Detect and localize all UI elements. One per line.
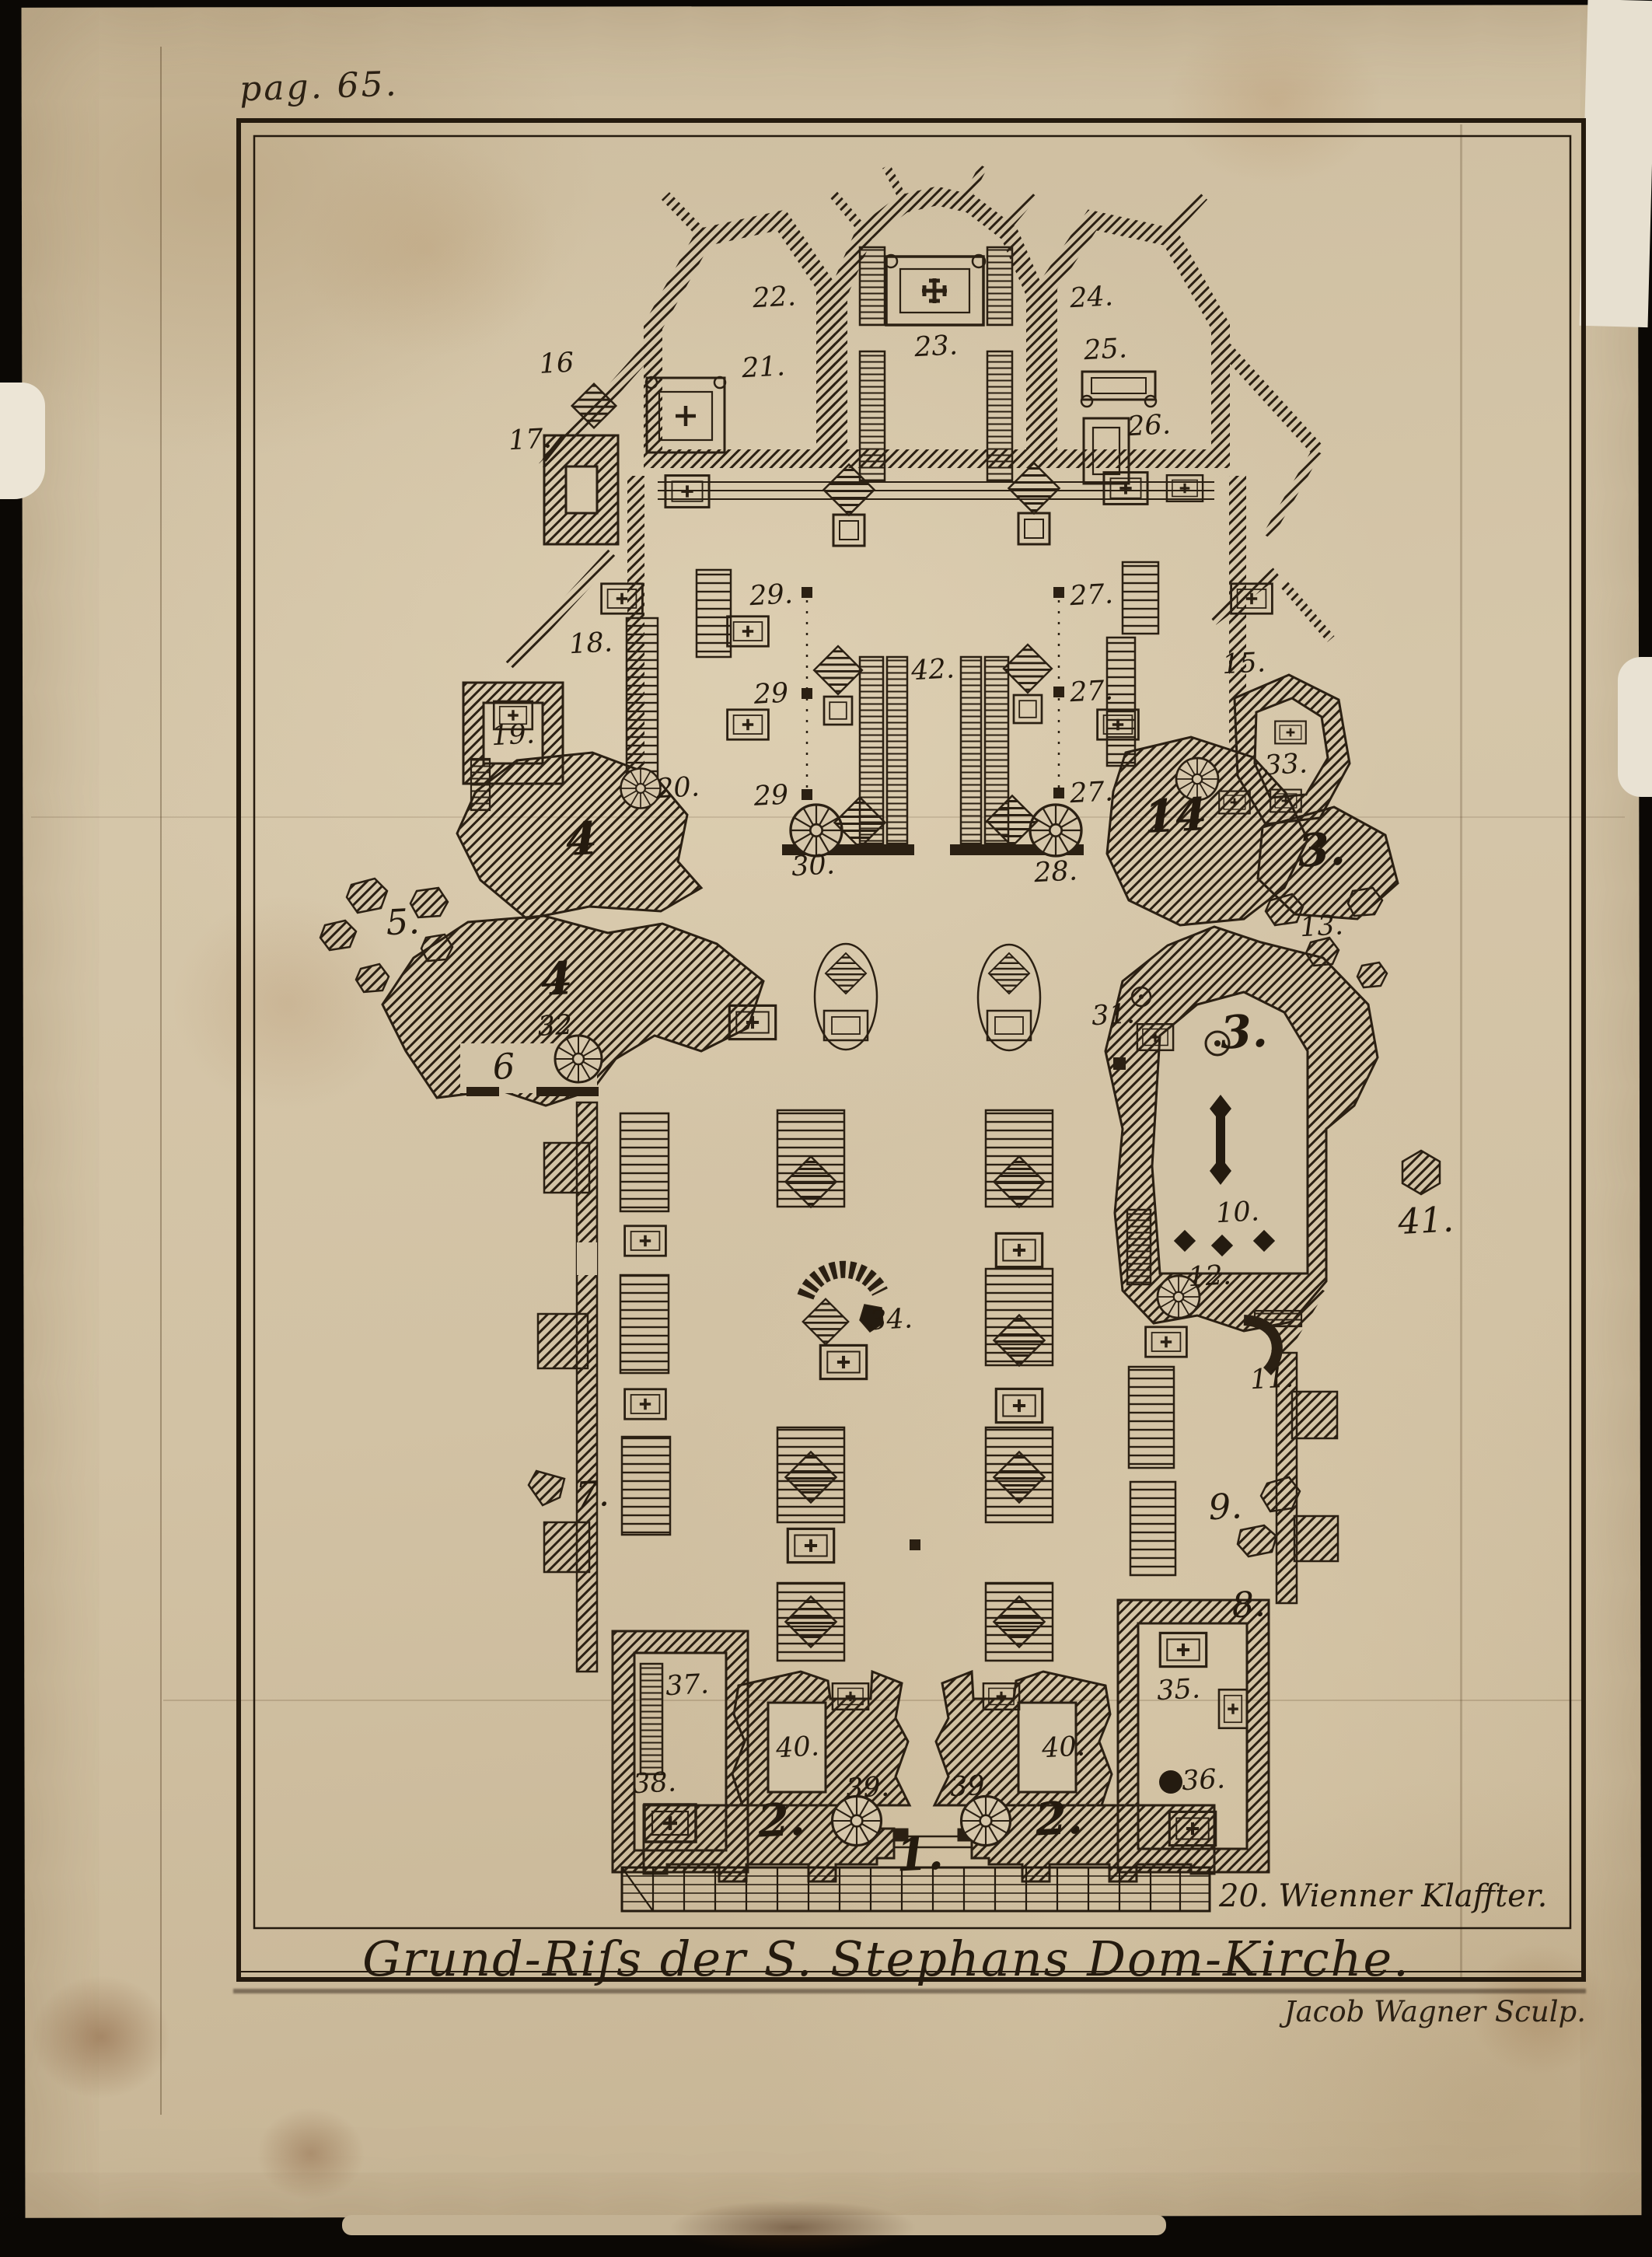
plan-number-label: 14 xyxy=(1143,791,1208,840)
plan-number-label: 9. xyxy=(1207,1488,1242,1525)
plan-number-label: 33. xyxy=(1263,750,1308,780)
plan-number-label: 27. xyxy=(1069,778,1113,808)
high-altar xyxy=(885,255,985,325)
plan-number-label: 34. xyxy=(868,1305,913,1335)
plan-number-label: 3. xyxy=(1219,1008,1269,1056)
plan-number-label: 40. xyxy=(775,1733,819,1763)
plan-number-label: 31. xyxy=(1091,1001,1135,1030)
plan-number-label: 30. xyxy=(791,851,835,881)
plan-number-label: 10. xyxy=(1215,1198,1259,1228)
plan-number-label: 18. xyxy=(568,629,613,659)
plan-number-label: 23. xyxy=(913,332,958,362)
scale-label: 20. Wienner Klaffter. xyxy=(1219,1878,1547,1914)
plan-number-label: 27. xyxy=(1069,581,1113,610)
plan-number-label: 21. xyxy=(741,353,785,383)
plan-number-label: 35. xyxy=(1156,1675,1200,1705)
plan-number-label: 28. xyxy=(1033,858,1077,887)
plan-number-label: 3. xyxy=(1297,826,1346,874)
plan-number-label: 2. xyxy=(1034,1795,1084,1843)
plan-number-label: 39. xyxy=(845,1773,889,1803)
plan-number-label: 19. xyxy=(491,721,535,750)
plan-number-label: 27. xyxy=(1069,677,1113,707)
plate-title: Grund-Riſs der S. Stephans Dom-Kirche. xyxy=(327,1930,1446,1987)
plan-number-label: 5. xyxy=(385,903,420,940)
plan-number-label: 7. xyxy=(575,1476,609,1512)
plan-number-label: 22. xyxy=(752,283,796,313)
plan-number-label: 32 xyxy=(537,1012,573,1041)
plan-number-label: 37. xyxy=(665,1671,709,1700)
plan-number-label: 16 xyxy=(539,350,575,379)
plan-number-label: 41. xyxy=(1397,1201,1455,1239)
plan-number-label: 20. xyxy=(655,774,700,803)
plan-number-label: 1. xyxy=(895,1831,945,1878)
plan-number-label: 24. xyxy=(1069,283,1113,313)
plan-number-label: 36. xyxy=(1181,1766,1225,1795)
plan-number-label: 29 xyxy=(753,680,789,709)
plan-number-label: 38. xyxy=(632,1769,676,1798)
plan-number-label: 15. xyxy=(1221,649,1266,679)
engraver-credit: Jacob Wagner Sculp. xyxy=(1182,1995,1586,2028)
plan-number-label: 8. xyxy=(1231,1586,1266,1623)
plan-number-label: 12. xyxy=(1187,1262,1231,1291)
plan-number-label: 2. xyxy=(756,1797,806,1844)
plan-number-label: 26. xyxy=(1126,411,1171,441)
plan-number-label: 29 xyxy=(753,782,789,811)
engraved-plate-page: pag. 65. xyxy=(0,0,1652,2257)
plan-number-label: 42. xyxy=(910,655,955,685)
plan-number-label: 6 xyxy=(492,1049,516,1085)
plan-number-label: 13. xyxy=(1299,912,1343,942)
plan-number-label: 4 xyxy=(564,816,598,862)
side-altar xyxy=(1081,372,1156,407)
plan-number-label: 40. xyxy=(1041,1733,1085,1763)
plan-number-label: 17. xyxy=(508,425,552,455)
floor-plan-engraving xyxy=(0,0,1652,2257)
plan-number-label: 25. xyxy=(1083,335,1127,365)
plan-number-label: 29. xyxy=(749,581,793,610)
plan-number-label: 4 xyxy=(540,956,573,1002)
plan-number-label: 11. xyxy=(1249,1364,1294,1394)
plan-number-label: 39. xyxy=(949,1772,994,1801)
